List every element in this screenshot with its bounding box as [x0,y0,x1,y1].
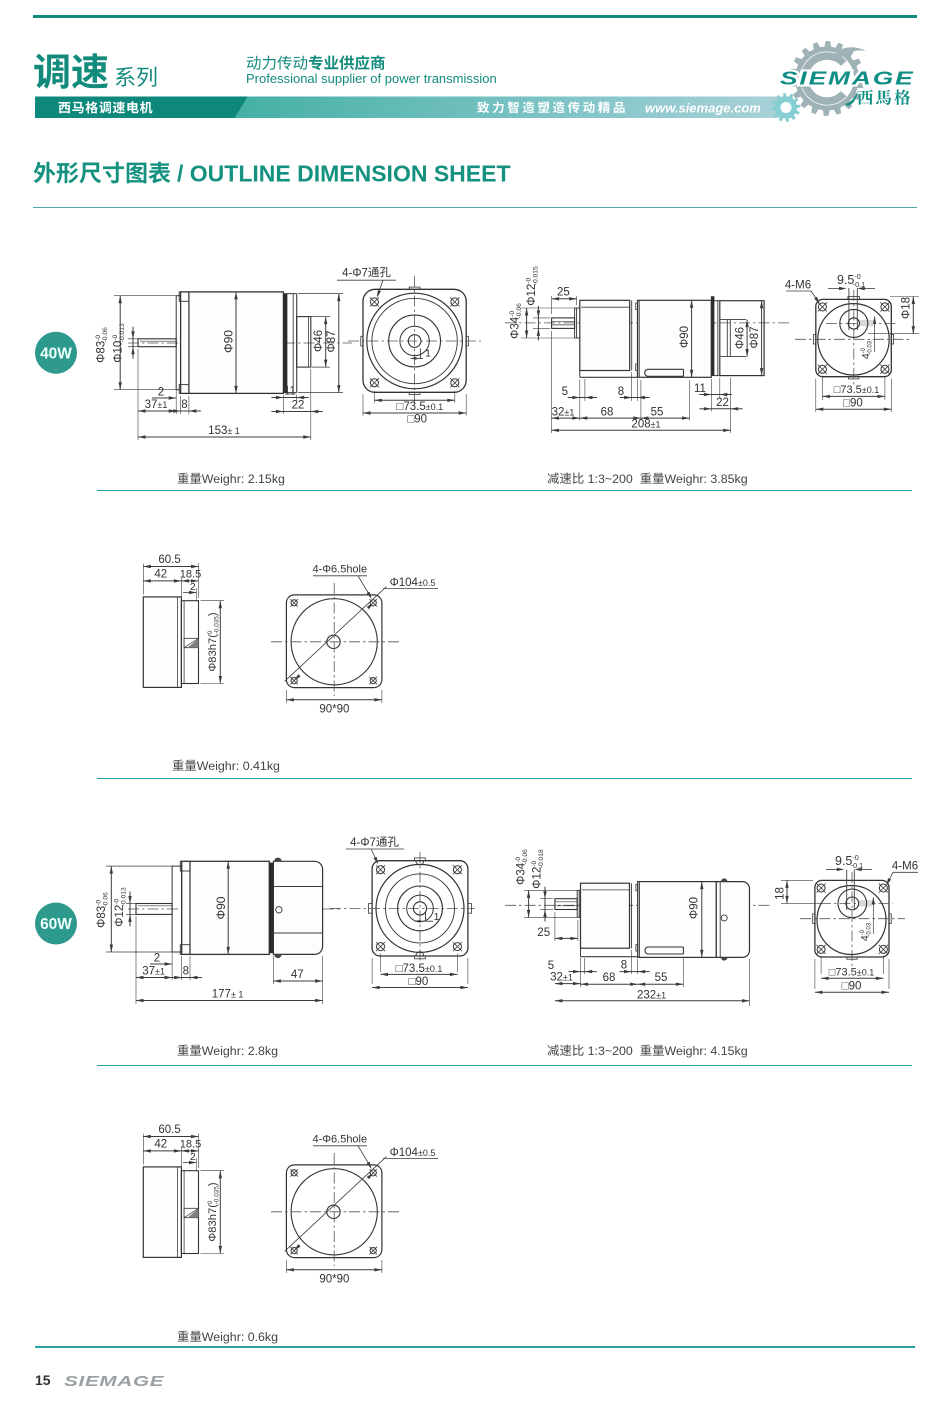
svg-text:2: 2 [154,953,160,965]
svg-text:55: 55 [655,972,668,984]
svg-text:25: 25 [557,287,570,299]
svg-text:Φ46: Φ46 [313,330,325,352]
svg-text:Φ34-0-0.06: Φ34-0-0.06 [515,849,529,885]
svg-text:8: 8 [621,959,627,971]
svg-text:4-M6: 4-M6 [892,861,918,873]
svg-text:Φ90: Φ90 [679,326,691,348]
svg-text:55: 55 [651,406,664,418]
svg-text:177± 1: 177± 1 [212,988,244,1000]
svg-text:Φ12-0-0.015: Φ12-0-0.015 [526,266,540,306]
svg-text:□90: □90 [407,413,427,425]
svg-text:40W: 40W [40,345,72,362]
svg-text:4-Φ7: 4-Φ7 [350,837,376,849]
svg-text:42: 42 [154,1139,167,1151]
svg-text:153± 1: 153± 1 [208,425,240,437]
svg-text:22: 22 [716,397,729,409]
svg-text:90*90: 90*90 [319,1274,349,1286]
svg-text:60.5: 60.5 [158,554,180,566]
svg-text:11: 11 [694,383,706,395]
svg-text:4-M6: 4-M6 [785,280,811,292]
svg-text:Φ90: Φ90 [689,897,701,919]
svg-text:232±1: 232±1 [637,989,666,1001]
svg-text:47: 47 [291,969,304,981]
svg-text:2: 2 [190,581,196,593]
svg-text:18.5: 18.5 [180,1139,201,1151]
svg-text:37±1: 37±1 [142,965,165,977]
svg-text:37±1: 37±1 [145,399,168,411]
svg-text:68: 68 [601,406,614,418]
svg-text:32±1: 32±1 [550,972,573,984]
svg-text:Φ83-0-0.06: Φ83-0-0.06 [95,327,109,363]
svg-text:Weighr: 3.85kg: Weighr: 3.85kg [665,472,748,486]
svg-text:4-0-0.03: 4-0-0.03 [860,340,874,359]
svg-text:□73.5±0.1: □73.5±0.1 [834,384,880,396]
svg-text:8: 8 [183,965,189,977]
svg-text:Φ46: Φ46 [735,327,747,349]
svg-text:□73.5±0.1: □73.5±0.1 [396,963,443,975]
svg-text:60W: 60W [40,916,72,933]
svg-text:4-0-0.03: 4-0-0.03 [859,922,873,941]
svg-text:Φ90: Φ90 [222,330,236,353]
svg-text:1:3~200: 1:3~200 [584,472,639,486]
svg-text:32±1: 32±1 [552,406,575,418]
svg-text:11: 11 [284,386,296,398]
svg-text:25: 25 [537,927,550,939]
svg-text:18.5: 18.5 [180,569,201,581]
svg-text:□90: □90 [409,976,429,988]
svg-text:1:3~200: 1:3~200 [584,1044,639,1058]
svg-text:42: 42 [154,569,167,581]
svg-text:Φ12-0-0.018: Φ12-0-0.018 [531,849,545,889]
svg-text:Φ104±0.5: Φ104±0.5 [390,577,436,589]
svg-text:2: 2 [190,1151,196,1163]
svg-text:□73.5±0.1: □73.5±0.1 [829,967,875,979]
svg-text:9.5-0-0.1: 9.5-0-0.1 [835,853,863,870]
svg-text:Φ12-0-0.013: Φ12-0-0.013 [114,887,128,927]
svg-text:Weighr: 0.41kg: Weighr: 0.41kg [197,759,280,773]
svg-text:22: 22 [292,400,305,412]
svg-text:Weighr: 4.15kg: Weighr: 4.15kg [665,1044,748,1058]
svg-text:□90: □90 [843,398,863,410]
svg-text:Φ83-0-0.06: Φ83-0-0.06 [96,892,110,928]
svg-text:Φ87: Φ87 [326,331,338,353]
svg-text:208±1: 208±1 [631,419,660,431]
svg-text:8: 8 [181,399,187,411]
svg-text:4-Φ7: 4-Φ7 [342,267,368,279]
svg-text:5: 5 [548,960,554,972]
svg-text:Φ10-0-0.013: Φ10-0-0.013 [112,323,126,363]
svg-text:8: 8 [618,386,624,398]
svg-text:Weighr: 0.6kg: Weighr: 0.6kg [202,1330,278,1344]
svg-text:18: 18 [775,887,787,900]
svg-text:□90: □90 [842,981,862,993]
svg-text:2: 2 [158,387,164,399]
svg-text:4-Φ6.5hole: 4-Φ6.5hole [312,563,367,575]
svg-text:5: 5 [562,386,568,398]
svg-text:90*90: 90*90 [319,704,349,716]
svg-text:4-Φ6.5hole: 4-Φ6.5hole [312,1133,367,1145]
svg-text:Φ90: Φ90 [214,896,228,919]
svg-text:68: 68 [603,972,616,984]
svg-text:1: 1 [425,348,431,360]
svg-text:Weighr: 2.15kg: Weighr: 2.15kg [202,472,285,486]
svg-text:1: 1 [434,911,440,923]
svg-text:Φ104±0.5: Φ104±0.5 [390,1147,436,1159]
svg-text:9.5-0-0.1: 9.5-0-0.1 [837,272,865,289]
svg-text:Φ87: Φ87 [749,327,761,349]
svg-text:Φ83h7(0-0.035): Φ83h7(0-0.035) [207,1182,221,1242]
svg-text:Weighr: 2.8kg: Weighr: 2.8kg [202,1044,278,1058]
svg-text:Φ18: Φ18 [901,297,913,319]
svg-text:/ OUTLINE DIMENSION SHEET: / OUTLINE DIMENSION SHEET [177,160,511,186]
svg-text:Φ83h7(0-0.035): Φ83h7(0-0.035) [207,612,221,672]
svg-text:SIEMAGE: SIEMAGE [780,69,915,89]
svg-text:60.5: 60.5 [158,1124,180,1136]
svg-text:□73.5±0.1: □73.5±0.1 [396,401,443,413]
